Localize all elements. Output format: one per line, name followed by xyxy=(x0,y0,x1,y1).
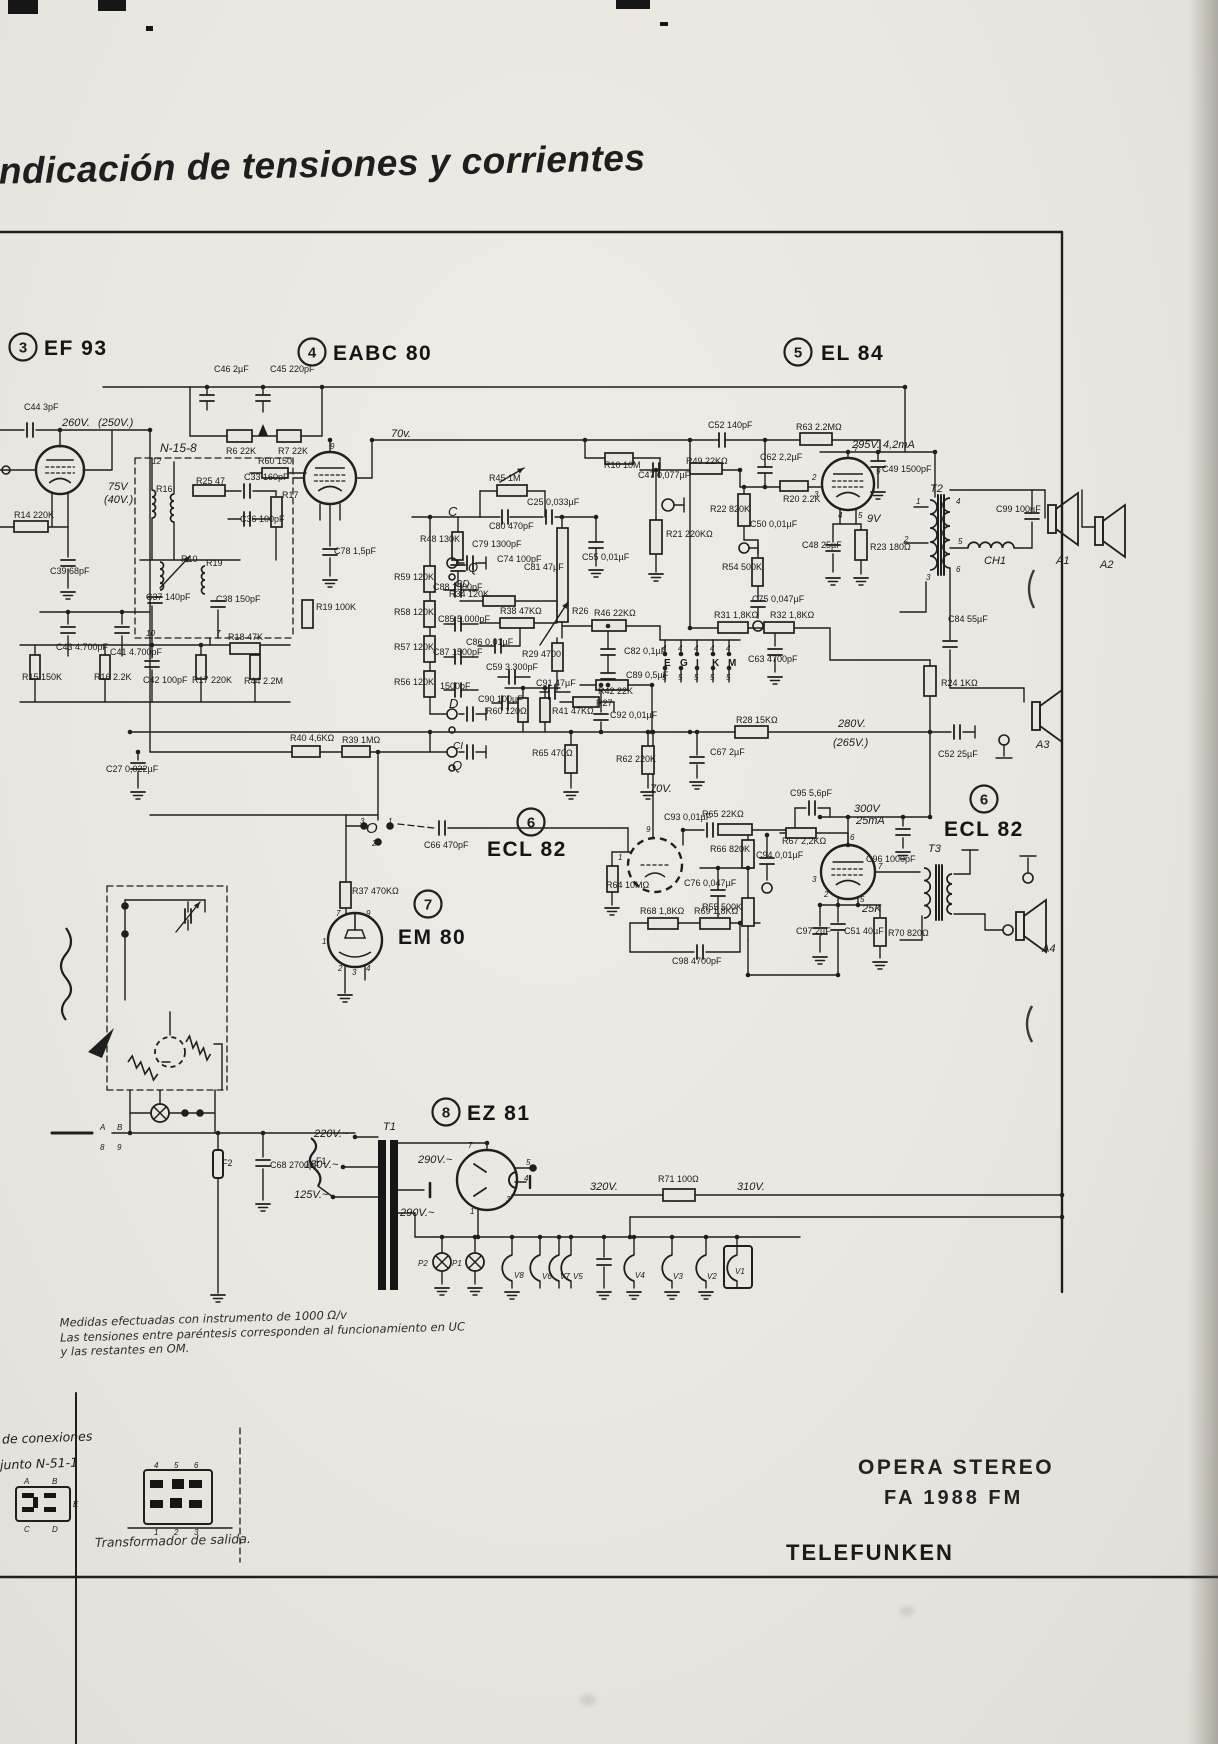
component-label: 10 xyxy=(146,629,155,638)
component-label: 280V. xyxy=(837,718,866,730)
tube-legend-number: 4 xyxy=(308,345,317,362)
component-label: R71 100Ω xyxy=(658,1174,699,1184)
resistor-icon xyxy=(227,430,252,442)
component-label: 4 xyxy=(710,644,715,653)
speaker-cone xyxy=(1056,493,1078,545)
component-label: C90 100µF xyxy=(478,694,523,704)
scan-smudge xyxy=(900,1606,914,1616)
component-label: R60 150 xyxy=(258,456,292,466)
component-label: C48 25µF xyxy=(802,540,842,550)
component-label: R18 47K xyxy=(228,632,263,642)
component-label: 5 xyxy=(710,673,715,682)
zigzag-resistor xyxy=(128,1056,158,1080)
component-label: A xyxy=(99,1123,105,1132)
component-label: P1 xyxy=(452,1259,462,1268)
component-label: C43 4.700pF xyxy=(56,642,109,652)
component-label: 4 xyxy=(366,964,371,973)
component-label: R54 500K xyxy=(722,562,762,572)
junction-dot xyxy=(846,450,851,455)
junction-dot xyxy=(370,438,375,443)
resistor-icon xyxy=(764,622,794,633)
component-label: R17 220K xyxy=(192,675,232,685)
component-label: R60 120Ω xyxy=(486,706,527,716)
resistor-icon xyxy=(855,530,867,560)
page-curl-mark xyxy=(1027,1006,1032,1042)
component-label: 4 xyxy=(662,644,667,653)
filled-block xyxy=(189,1480,202,1488)
component-label: R37 470KΩ xyxy=(352,886,399,896)
component-label: 5 xyxy=(694,673,699,682)
component-label: R46 22KΩ xyxy=(594,608,636,618)
maker-name: TELEFUNKEN xyxy=(786,1540,954,1566)
component-label: C25 0,033µF xyxy=(527,497,580,507)
component-label: C96 1000pF xyxy=(866,854,916,864)
resistor-icon xyxy=(277,430,301,442)
component-label: C80 470pF xyxy=(489,521,534,531)
component-label: C44 3pF xyxy=(24,402,59,412)
component-label: 5 xyxy=(726,673,731,682)
junction-dot xyxy=(646,730,651,735)
component-label: 3 xyxy=(506,1195,511,1204)
rectifier-plate xyxy=(474,1188,486,1196)
component-label: 9 xyxy=(646,825,651,834)
junction-dot xyxy=(331,1195,336,1200)
component-label: 9 xyxy=(876,467,881,476)
junction-dot xyxy=(128,730,133,735)
contact-dot xyxy=(122,903,128,909)
filled-block xyxy=(33,1497,38,1508)
scanned-schematic-page: indicación de tensiones y corrientes C44… xyxy=(0,0,1218,1744)
component-label: 5 xyxy=(958,537,963,546)
resistor-icon xyxy=(700,918,730,929)
speaker-icon xyxy=(1016,912,1024,940)
tube-symbol xyxy=(304,452,356,504)
resistor-icon xyxy=(718,824,752,835)
terminal-circle xyxy=(762,883,772,893)
component-label: R19 100K xyxy=(316,602,356,612)
junction-dot xyxy=(261,385,266,390)
component-label: P2 xyxy=(418,1259,428,1268)
component-label: R26 xyxy=(572,606,589,616)
contact-dot xyxy=(182,1110,188,1116)
component-label: R65 22KΩ xyxy=(702,809,744,819)
junction-dot xyxy=(650,730,655,735)
component-label: R67 2,2KΩ xyxy=(782,836,827,846)
eye-tube-target xyxy=(345,930,365,938)
corner-note-1: de conexiones xyxy=(2,1428,93,1446)
component-label: C75 0,047µF xyxy=(752,594,805,604)
coil-icon xyxy=(152,490,156,518)
component-label: C27 0,022µF xyxy=(106,764,159,774)
coil-icon xyxy=(947,874,952,914)
page-edge-shading xyxy=(1188,0,1218,1744)
tube-legend-number: 6 xyxy=(527,815,535,832)
junction-dot xyxy=(928,730,933,735)
junction-dot xyxy=(594,515,599,520)
component-label: CI xyxy=(453,741,463,752)
component-label: CH1 xyxy=(984,555,1006,567)
component-label: 1 xyxy=(322,937,326,946)
component-label: 300V xyxy=(854,803,881,815)
tube-cathode xyxy=(318,487,341,492)
component-label: G xyxy=(680,658,688,669)
filled-block xyxy=(378,1140,386,1290)
component-label: R41 47KΩ xyxy=(552,706,594,716)
tube-cathode xyxy=(49,479,71,484)
resistor-icon xyxy=(540,698,550,722)
junction-dot xyxy=(763,485,768,490)
component-label: C98 4700pF xyxy=(672,956,722,966)
component-label: 7 xyxy=(854,444,859,453)
component-label: R49 22KΩ xyxy=(686,456,728,466)
junction-dot xyxy=(818,815,823,820)
component-label: CD xyxy=(455,579,469,590)
junction-dot xyxy=(1060,1193,1065,1198)
junction-dot xyxy=(128,1131,133,1136)
component-label: A3 xyxy=(1035,739,1050,751)
component-label: 2 xyxy=(811,473,817,482)
resistor-icon xyxy=(735,726,768,738)
component-label: R58 120K xyxy=(394,607,434,617)
squiggle-wire xyxy=(61,928,71,1020)
junction-dot xyxy=(628,1235,633,1240)
component-label: C97 2µF xyxy=(796,926,831,936)
component-label: C46 2µF xyxy=(214,364,249,374)
component-label: 9 xyxy=(117,1143,122,1152)
component-label: R17 xyxy=(282,490,299,500)
component-label: (250V.) xyxy=(98,417,134,429)
component-label: N-15-8 xyxy=(160,441,197,455)
component-label: Q xyxy=(468,560,478,575)
speaker-icon xyxy=(1095,517,1103,545)
resistor-icon xyxy=(302,600,313,628)
resistor-icon xyxy=(230,643,260,654)
junction-dot xyxy=(261,1131,266,1136)
component-label: R16 xyxy=(156,484,173,494)
component-label: V2 xyxy=(707,1272,717,1281)
resistor-icon xyxy=(663,1189,695,1201)
heater-icon xyxy=(696,1255,706,1281)
component-label: O xyxy=(366,820,378,837)
junction-dot xyxy=(928,815,933,820)
tube-legend-name: EM 80 xyxy=(398,926,466,949)
junction-dot xyxy=(765,833,770,838)
component-label: 125V.~ xyxy=(294,1189,329,1201)
component-label: C81 47µF xyxy=(524,562,564,572)
tube-cathode xyxy=(836,881,860,886)
component-label: R31 1,8KΩ xyxy=(714,610,759,620)
component-label: C66 470pF xyxy=(424,840,469,850)
tube-legend-number: 5 xyxy=(794,345,802,362)
component-label: D xyxy=(52,1525,58,1534)
component-label: C99 100µF xyxy=(996,504,1041,514)
component-label: R59 120K xyxy=(394,572,434,582)
component-label: C59 3.300pF xyxy=(486,662,539,672)
component-label: D xyxy=(449,696,458,711)
component-label: 5 xyxy=(526,1158,531,1167)
coil-icon xyxy=(930,500,937,570)
resistor-icon xyxy=(340,882,351,908)
tube-legend-number: 6 xyxy=(980,792,988,809)
speaker-icon xyxy=(1048,505,1056,533)
component-label: R22 820K xyxy=(710,504,750,514)
junction-dot xyxy=(746,973,751,978)
page-curl-mark xyxy=(1029,570,1034,608)
resistor-icon xyxy=(924,666,936,696)
component-label: R68 1,8KΩ xyxy=(640,906,685,916)
component-label: R32 1,8KΩ xyxy=(770,610,815,620)
tube-symbol xyxy=(36,446,84,494)
component-label: C63 4700pF xyxy=(748,654,798,664)
component-label: C41 4.700pF xyxy=(110,647,163,657)
filled-block xyxy=(390,1140,398,1290)
component-label: R64 10MΩ xyxy=(606,880,650,890)
junction-dot xyxy=(836,973,841,978)
component-label: 1 xyxy=(388,817,392,826)
schematic-canvas: C44 3pF260V.(250V.)75V(40V.)R14 220KC39 … xyxy=(0,0,1218,1744)
component-label: 5 xyxy=(678,673,683,682)
dashed-wire xyxy=(398,824,434,828)
component-label: C86 0,01µF xyxy=(466,637,514,647)
junction-dot xyxy=(688,438,693,443)
coil-icon xyxy=(924,868,930,918)
component-label: 3 xyxy=(360,817,365,826)
heater-icon xyxy=(624,1255,634,1281)
component-label: 7 xyxy=(468,1141,473,1150)
component-label: 6 xyxy=(194,1461,199,1470)
junction-dot xyxy=(120,610,125,615)
component-label: 220V.~ xyxy=(313,1128,349,1140)
scan-smudge xyxy=(580,1694,596,1706)
component-label: R57 120K xyxy=(394,642,434,652)
component-label: R56 120K xyxy=(394,677,434,687)
component-label: 6 xyxy=(956,565,961,574)
component-label: C55 0,01µF xyxy=(582,552,630,562)
tube-legend-name: EL 84 xyxy=(821,342,884,365)
junction-dot xyxy=(742,485,747,490)
component-label: E xyxy=(73,1500,79,1509)
outline-box xyxy=(144,1470,212,1524)
component-label: B xyxy=(117,1123,123,1132)
component-label: C38 150pF xyxy=(216,594,261,604)
filled-block xyxy=(150,1480,163,1488)
tube-cathode xyxy=(836,493,859,498)
component-label: (265V.) xyxy=(833,737,869,749)
component-label: C52 140pF xyxy=(708,420,753,430)
component-label: T1 xyxy=(383,1121,396,1133)
component-label: R28 15KΩ xyxy=(736,715,778,725)
component-label: V4 xyxy=(635,1271,645,1280)
component-label: A1 xyxy=(1055,555,1069,567)
resistor-icon xyxy=(500,618,534,628)
terminal-circle xyxy=(999,735,1009,745)
filled-block xyxy=(146,26,153,31)
component-label: 4 xyxy=(726,644,731,653)
component-label: 295V. 4,2mA xyxy=(851,439,915,451)
speaker-cone xyxy=(1040,690,1062,742)
junction-dot xyxy=(688,626,693,631)
component-label: C95 5,6pF xyxy=(790,788,833,798)
component-label: 5 xyxy=(174,1461,179,1470)
component-label: C79 1300pF xyxy=(472,539,522,549)
component-label: C42 100pF xyxy=(143,675,188,685)
component-label: R42 22K xyxy=(598,686,633,696)
component-label: V7 xyxy=(560,1272,570,1281)
junction-dot xyxy=(716,866,721,871)
component-label: 9V xyxy=(867,513,882,525)
zigzag-resistor xyxy=(186,1036,211,1060)
junction-dot xyxy=(746,866,751,871)
component-label: I xyxy=(696,658,699,669)
component-label: C47 0,077µF xyxy=(638,470,691,480)
model-name: OPERA STEREO xyxy=(858,1456,1054,1480)
junction-dot xyxy=(599,730,604,735)
component-label: C67 2µF xyxy=(710,747,745,757)
tube-legend-name: EABC 80 xyxy=(333,342,432,365)
component-label: K xyxy=(712,658,720,669)
component-label: Q xyxy=(452,758,462,773)
filled-block xyxy=(44,1493,56,1498)
terminal-circle xyxy=(662,499,674,511)
component-label: C82 0,1µF xyxy=(624,646,667,656)
component-label: 5 xyxy=(858,511,863,520)
resistor-icon xyxy=(780,481,808,491)
resistor-icon xyxy=(742,898,754,926)
component-label: R6 22K xyxy=(226,446,256,456)
component-label: C37 140pF xyxy=(146,592,191,602)
junction-dot xyxy=(901,815,906,820)
component-label: R14 220K xyxy=(14,510,54,520)
component-label: C87 1500pF xyxy=(433,647,483,657)
resistor-icon xyxy=(497,485,527,496)
component-label: 75V xyxy=(108,481,129,493)
junction-dot xyxy=(818,903,823,908)
component-label: R16 2.2K xyxy=(94,672,132,682)
filled-block xyxy=(616,0,650,9)
component-label: 6 xyxy=(850,833,855,842)
junction-dot xyxy=(903,385,908,390)
component-label: R34 120K xyxy=(449,589,489,599)
junction-dot xyxy=(428,730,433,735)
component-label: R69 1,8KΩ xyxy=(694,906,739,916)
resistor-icon xyxy=(648,918,678,929)
coil-icon xyxy=(171,494,175,522)
component-label: B xyxy=(52,1477,58,1486)
component-label: 9 xyxy=(366,909,371,918)
component-label: R27 xyxy=(596,698,613,708)
junction-dot xyxy=(560,515,565,520)
junction-dot xyxy=(606,624,611,629)
component-label: 7 xyxy=(216,629,221,638)
filled-block xyxy=(98,0,126,11)
terminal-circle xyxy=(739,543,749,553)
junction-dot xyxy=(473,1235,478,1240)
component-label: C52 25µF xyxy=(938,749,978,759)
junction-dot xyxy=(681,828,686,833)
component-label: C76 0,047µF xyxy=(684,878,737,888)
tube-legend-number: 3 xyxy=(19,340,27,357)
heater-icon xyxy=(502,1255,512,1281)
component-label: R21 220KΩ xyxy=(666,529,713,539)
component-label: 1 xyxy=(618,853,622,862)
component-label: A xyxy=(23,1477,29,1486)
filled-block xyxy=(189,1500,202,1508)
component-label: C xyxy=(448,504,458,519)
filled-block xyxy=(22,1493,34,1498)
junction-dot xyxy=(846,815,851,820)
component-label: 1 xyxy=(916,497,920,506)
component-label: R38 47KΩ xyxy=(500,606,542,616)
junction-dot xyxy=(341,1165,346,1170)
component-label: 9 xyxy=(330,442,335,451)
filled-block xyxy=(660,22,668,26)
component-label: R66 820K xyxy=(710,844,750,854)
component-label: C36 100pF xyxy=(240,514,285,524)
tube-legend-name: ECL 82 xyxy=(944,818,1024,841)
component-label: 3 xyxy=(814,490,819,499)
corner-note-2: junto N-51-1 xyxy=(0,1455,78,1473)
component-label: 70V. xyxy=(650,783,672,795)
resistor-icon xyxy=(718,622,748,633)
component-label: 1 xyxy=(470,1207,474,1216)
junction-dot xyxy=(440,1235,445,1240)
component-label: A2 xyxy=(1099,559,1113,571)
junction-dot xyxy=(376,750,381,755)
component-label: R10 xyxy=(181,554,198,564)
component-label: R65 470Ω xyxy=(532,748,573,758)
component-label: 290V.~ xyxy=(399,1207,435,1219)
junction-dot xyxy=(602,1235,607,1240)
junction-dot xyxy=(583,438,588,443)
component-label: R70 820Ω xyxy=(888,928,929,938)
component-label: C33 160pF xyxy=(244,472,289,482)
filled-block xyxy=(170,1498,182,1508)
component-label: 4 xyxy=(678,644,683,653)
component-label: 4 xyxy=(524,1174,529,1183)
component-label: T3 xyxy=(928,843,942,855)
resistor-icon xyxy=(292,746,320,757)
component-label: 5 xyxy=(662,673,667,682)
speaker-cone xyxy=(1103,505,1125,557)
filled-block xyxy=(172,1479,184,1489)
junction-dot xyxy=(320,385,325,390)
component-label: 3 xyxy=(352,968,357,977)
arrow-mark xyxy=(88,1028,114,1058)
tube-legend-name: ECL 82 xyxy=(487,838,567,861)
junction-dot xyxy=(428,515,433,520)
component-label: R39 1MΩ xyxy=(342,735,381,745)
component-label: 4 xyxy=(694,644,699,653)
terminal-circle xyxy=(753,621,763,631)
component-label: 2 xyxy=(371,839,377,848)
component-label: 4 xyxy=(956,497,961,506)
resistor-icon xyxy=(193,485,225,496)
choke-coil-icon xyxy=(968,542,1014,548)
model-number: FA 1988 FM xyxy=(884,1487,1023,1510)
resistor-icon xyxy=(342,746,370,757)
component-label: C49 1500pF xyxy=(882,464,932,474)
component-label: 8 xyxy=(100,1143,105,1152)
junction-dot xyxy=(846,843,851,848)
junction-dot xyxy=(836,903,841,908)
resistor-icon xyxy=(14,521,48,532)
resistor-icon xyxy=(800,433,832,445)
junction-dot xyxy=(199,643,204,648)
component-label: 5 xyxy=(860,895,865,904)
component-label: R62 220K xyxy=(616,754,656,764)
component-label: C51 40µF xyxy=(844,926,884,936)
component-label: 150V.~ xyxy=(304,1159,339,1171)
